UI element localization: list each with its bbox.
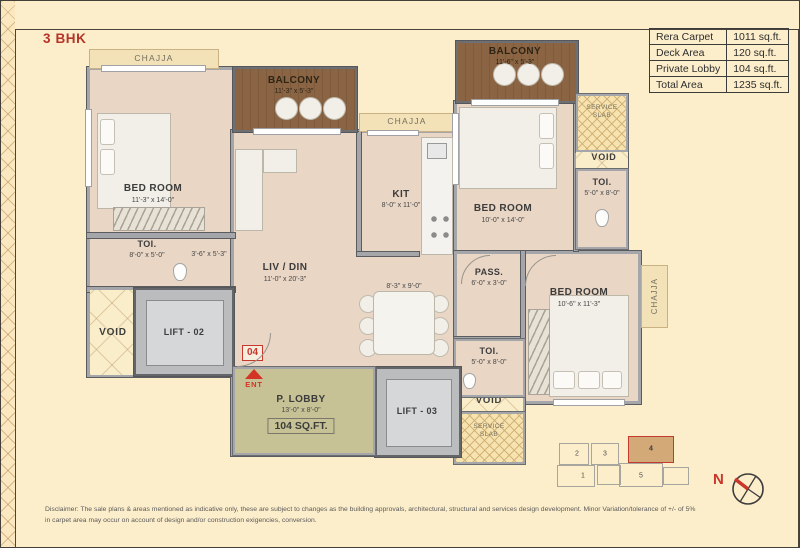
balcony-chair [275,97,298,120]
room-label-toi2: TOI. [593,177,612,187]
dining-table [373,291,435,355]
area-row-value: 104 sq.ft. [727,61,789,77]
balcony-chair [541,63,564,86]
wall [357,252,419,256]
table-row: Rera Carpet 1011 sq.ft. [650,29,789,45]
room-label-balcony1: BALCONY [268,75,320,86]
key-plan-unit-number: 5 [639,473,643,480]
room-label-pass: PASS. [475,267,503,277]
room-dim-bedroom1: 11'-3" x 14'-0" [132,197,175,204]
service-slab-top [576,94,628,152]
wall [357,132,361,256]
disclaimer-line2: in carpet area may occur on account of d… [45,517,317,524]
window [367,130,419,136]
area-row-label: Rera Carpet [650,29,727,45]
key-plan-unit-number: 3 [603,451,607,458]
void-label: VOID [99,327,127,338]
balcony-chair [299,97,322,120]
window [85,109,92,187]
window [471,99,559,106]
room-dim-balcony2: 11'-6" x 5'-3" [496,59,535,66]
page-title: 3 BHK [43,31,87,46]
entrance-arrow-icon [245,369,263,379]
pillow [578,371,600,389]
room-dim-livdin: 11'-0" x 20'-3" [264,276,307,283]
table-row: Private Lobby 104 sq.ft. [650,61,789,77]
disclaimer-line1: Disclaimer: The sale plans & areas menti… [45,506,695,513]
room-label-bedroom1: BED ROOM [124,183,182,194]
toilet-wc-icon [463,373,476,389]
pillow [100,149,115,175]
north-pointer [735,479,748,489]
room-dim-toi1: 8'-0" x 5'-0" [129,252,164,259]
kitchen-stove [425,207,451,245]
area-row-value: 120 sq.ft. [727,45,789,61]
lattice-border-strip [1,1,15,548]
sofa-seat [263,149,297,173]
area-summary-table: Rera Carpet 1011 sq.ft. Deck Area 120 sq… [649,28,789,93]
room-label-plobby: P. LOBBY [276,394,325,405]
pillow [602,371,622,389]
floor-plan-page: 3 BHK Rera Carpet 1011 sq.ft. Deck Area … [0,0,800,548]
area-row-label: Private Lobby [650,61,727,77]
key-plan-unit-number: 4 [649,446,653,453]
chajja-right: CHAJJA [641,265,668,328]
balcony-chair [517,63,540,86]
room-label-toi3: TOI. [480,346,499,356]
key-plan-unit-outline [559,443,589,465]
key-plan: 2 3 4 1 5 [551,431,697,491]
room-dim-kit: 8'-0" x 11'-0" [382,202,421,209]
north-label: N [713,471,724,488]
window [553,399,625,406]
window [101,65,206,72]
void-label: VOID [591,152,616,162]
key-plan-unit-number: 1 [581,473,585,480]
balcony-chair [493,63,516,86]
room-dim-balcony1: 11'-3" x 5'-3" [275,88,314,95]
balcony-chair [323,97,346,120]
room-label-balcony2: BALCONY [489,46,541,57]
area-row-value: 1011 sq.ft. [727,29,789,45]
lift2-label: LIFT - 02 [164,327,205,337]
dining-area-dim: 8'-3" x 9'-0" [386,283,421,290]
service-slab-label: SERVICE SLAB [466,423,512,439]
wardrobe [528,309,550,395]
toilet-wc-icon [173,263,187,281]
window [253,128,341,135]
sofa [235,149,263,231]
key-plan-unit-outline [557,465,595,487]
area-row-label: Total Area [650,77,727,93]
pillow [539,113,554,139]
pillow [539,143,554,169]
wardrobe [113,207,205,231]
chajja-label: CHAJJA [650,278,659,314]
compass: N [701,456,785,522]
plobby-area-box: 104 SQ.FT. [267,418,334,434]
room-label-bedroom2: BED ROOM [474,203,532,214]
chajja-label: CHAJJA [387,116,426,126]
chajja-label: CHAJJA [134,53,173,63]
room-label-livdin: LIV / DIN [263,262,308,273]
pillow [553,371,575,389]
key-plan-unit-number: 2 [575,451,579,458]
room-dim-pass: 6'-0" x 3'-0" [471,280,506,287]
room-dim-plobby: 13'-0" x 8'-0" [281,407,320,414]
service-slab-label: SERVICE SLAB [579,104,625,120]
table-row: Deck Area 120 sq.ft. [650,45,789,61]
pillow [100,119,115,145]
key-plan-unit-outline [663,467,689,485]
room-dim-toi2: 5'-0" x 8'-0" [584,190,619,197]
window [452,113,459,185]
room-label-toi1: TOI. [138,239,157,249]
kitchen-sink [427,143,447,159]
wall [87,233,235,238]
room-label-kit: KIT [392,189,409,200]
wall [521,251,525,339]
room-dim-bedroom3: 10'-6" x 11'-3" [558,301,601,308]
lift3-label: LIFT - 03 [397,406,438,416]
passage1-dim: 3'-6" x 5'-3" [188,250,230,259]
toilet-wc-icon [595,209,609,227]
area-row-label: Deck Area [650,45,727,61]
entrance-label: ENT [245,380,262,389]
room-label-bedroom3: BED ROOM [550,287,608,298]
room-dim-bedroom2: 10'-0" x 14'-0" [481,217,524,224]
key-plan-unit-outline [597,465,621,485]
room-dim-toi3: 5'-0" x 8'-0" [471,359,506,366]
area-row-value: 1235 sq.ft. [727,77,789,93]
table-row: Total Area 1235 sq.ft. [650,77,789,93]
